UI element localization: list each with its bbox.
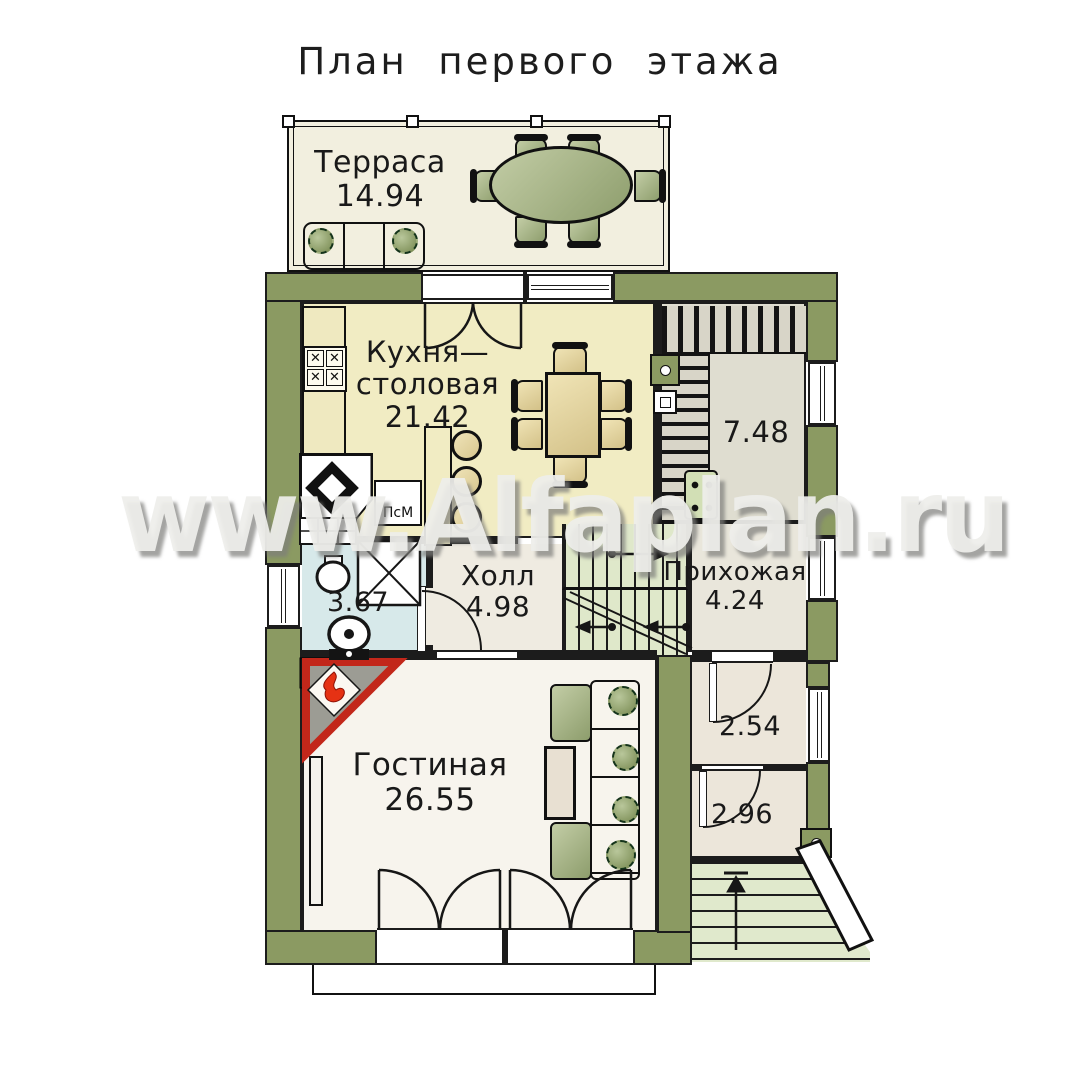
kitchen-name-line2: столовая [335,368,520,400]
living-name: Гостиная [330,748,530,783]
living-area: 26.55 [330,783,530,818]
fireplace [300,658,398,754]
entry-arrow [724,873,748,950]
page-title: План первого этажа [0,40,1080,83]
hall-area: 4.98 [438,591,558,622]
terrace-name: Терраса [300,146,460,180]
kitchen-area: 21.42 [335,401,520,433]
bathroom-area: 3.67 [306,588,410,618]
toilet [329,617,369,660]
tambour-label: 2.96 [692,800,792,830]
kitchen-name-line1: Кухня— [335,336,520,368]
kitchen-label: Кухня— столовая 21.42 [335,336,520,433]
tambour-area: 2.96 [692,800,792,830]
bathroom-label: 3.67 [306,588,410,618]
fireplace-body [306,662,398,754]
terrace-label: Терраса 14.94 [300,146,460,213]
living-label: Гостиная 26.55 [330,748,530,817]
closet-label: 2.54 [700,712,800,742]
entry-area: 4.24 [660,587,810,616]
french-door-arcs [379,870,631,930]
porch-ramp [797,841,872,950]
wardrobe-label: 7.48 [710,416,802,448]
closet-area: 2.54 [700,712,800,742]
floor-plan-canvas: План первого этажа [0,0,1080,1080]
wardrobe-area: 7.48 [710,416,802,448]
watermark: www.Alfaplan.ru [118,458,1007,575]
terrace-area: 14.94 [300,180,460,214]
